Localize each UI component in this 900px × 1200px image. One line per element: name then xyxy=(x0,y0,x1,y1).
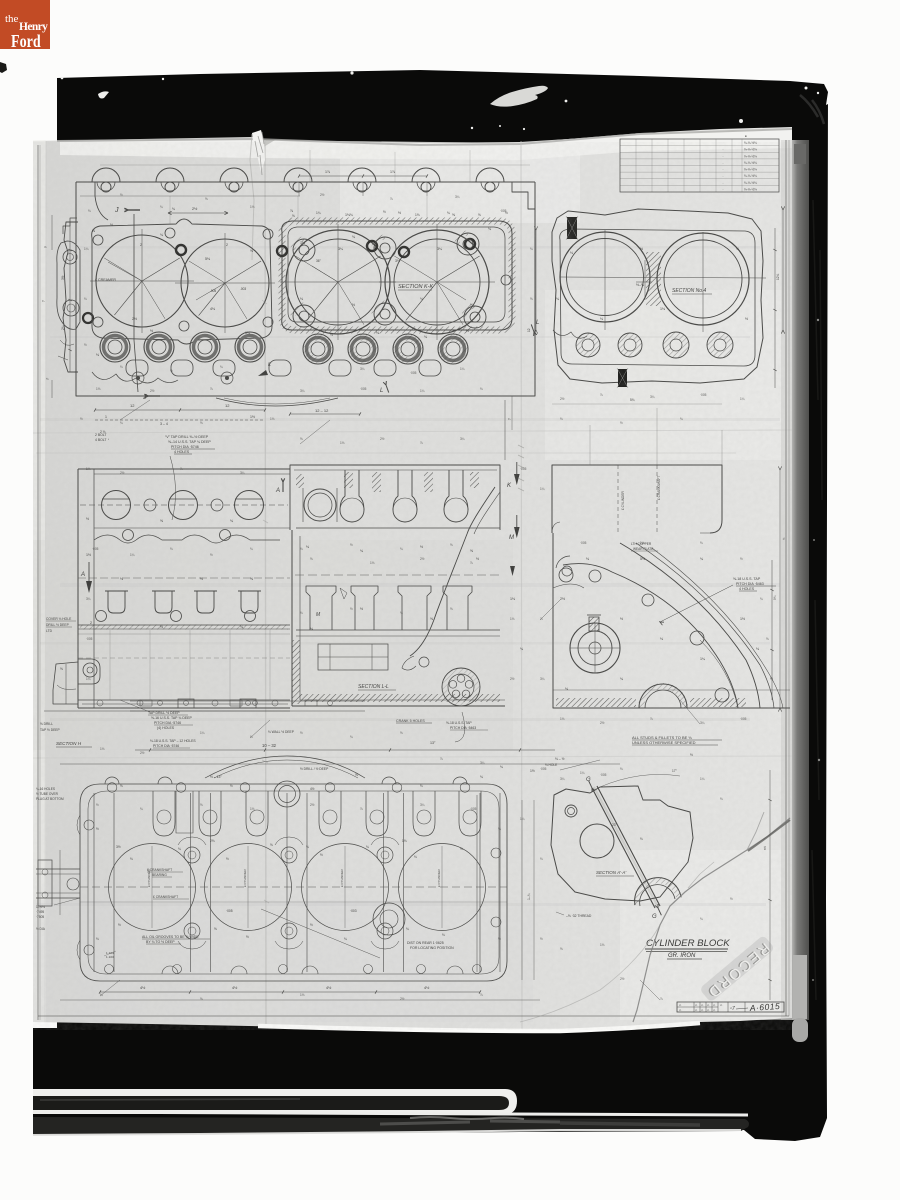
svg-text:½ DIA: ½ DIA xyxy=(36,927,46,931)
svg-text:¾: ¾ xyxy=(406,927,409,931)
svg-text:ALL OIL GROOVES TO BE ⅝ WIDE: ALL OIL GROOVES TO BE ⅝ WIDE xyxy=(142,935,199,939)
svg-text:4½: 4½ xyxy=(424,986,430,990)
svg-text:⅛: ⅛ xyxy=(170,547,173,551)
svg-text:4½: 4½ xyxy=(310,787,315,791)
svg-text:¾: ¾ xyxy=(500,765,503,769)
svg-text:1–⅛⅛: 1–⅛⅛ xyxy=(36,905,45,909)
svg-text:2½: 2½ xyxy=(140,751,145,755)
svg-text:SECTION K-K: SECTION K-K xyxy=(398,284,433,290)
svg-text:1⅛: 1⅛ xyxy=(86,467,91,471)
svg-text:£ CREAMER: £ CREAMER xyxy=(95,278,116,282)
svg-text:4⅛: 4⅛ xyxy=(210,307,215,311)
svg-text:⅛·: ⅛· xyxy=(701,1004,704,1007)
svg-text:1⅛: 1⅛ xyxy=(600,943,605,947)
svg-text:¾: ¾ xyxy=(350,735,353,739)
svg-text:⅝: ⅝ xyxy=(250,249,253,253)
svg-text:⅛·: ⅛· xyxy=(695,1004,698,1007)
svg-text:1½: 1½ xyxy=(250,415,255,419)
svg-text:··: ·· xyxy=(722,161,724,165)
svg-text:½: ½ xyxy=(540,937,543,941)
svg-text:½: ½ xyxy=(330,333,333,337)
svg-text:⅛-⅛-½⅛: ⅛-⅛-½⅛ xyxy=(744,154,757,158)
svg-text:⅛: ⅛ xyxy=(310,627,313,631)
svg-text:£ CYLINDER: £ CYLINDER xyxy=(621,491,625,510)
svg-text:.003: .003 xyxy=(240,287,246,291)
svg-text:1¼: 1¼ xyxy=(740,397,745,401)
svg-text:·005: ·005 xyxy=(520,467,527,471)
svg-text:½: ½ xyxy=(352,303,355,307)
svg-text:3¼: 3¼ xyxy=(455,195,460,199)
svg-text:⅛·: ⅛· xyxy=(679,1004,682,1007)
svg-text:WEAR PLATE: WEAR PLATE xyxy=(633,547,653,551)
svg-text:9¾: 9¾ xyxy=(773,595,777,600)
svg-text:¾: ¾ xyxy=(366,845,369,849)
svg-text:⅛ – ½: ⅛ – ½ xyxy=(555,757,565,761)
svg-text:½ DRILL / ½ DEEP: ½ DRILL / ½ DEEP xyxy=(300,767,329,771)
svg-text:A: A xyxy=(80,572,85,578)
svg-text:⅛-⅛-½⅛: ⅛-⅛-½⅛ xyxy=(744,148,757,152)
svg-text:⅛·: ⅛· xyxy=(707,1009,710,1012)
svg-text:L: L xyxy=(380,388,383,394)
svg-text:½: ½ xyxy=(226,857,229,861)
svg-text:⅛: ⅛ xyxy=(130,857,133,861)
svg-text:1¼: 1¼ xyxy=(700,777,705,781)
svg-text:⅛: ⅛ xyxy=(565,687,568,691)
svg-text:TAP DRILL ½ DEEP: TAP DRILL ½ DEEP xyxy=(148,711,180,715)
svg-text:2½: 2½ xyxy=(192,207,198,211)
svg-text:⅝: ⅝ xyxy=(478,213,481,217)
svg-text:2½: 2½ xyxy=(132,317,137,321)
svg-text:⅛: ⅛ xyxy=(300,611,303,615)
svg-text:⅛: ⅛ xyxy=(120,577,123,581)
svg-text:⅝: ⅝ xyxy=(530,297,533,301)
svg-text:¾: ¾ xyxy=(350,213,353,217)
svg-text:12: 12 xyxy=(130,403,135,408)
svg-text:·005: ·005 xyxy=(740,717,747,721)
svg-text:¾: ¾ xyxy=(480,775,483,779)
svg-text:3¼: 3¼ xyxy=(360,367,365,371)
svg-text:½: ½ xyxy=(350,607,353,611)
svg-text:½: ½ xyxy=(246,935,249,939)
svg-text:·005: ·005 xyxy=(540,767,547,771)
svg-text:¾: ¾ xyxy=(530,247,533,251)
svg-text:CRANK 5 HOLES: CRANK 5 HOLES xyxy=(396,719,425,723)
svg-text:2: 2 xyxy=(90,621,92,625)
svg-text:⅝: ⅝ xyxy=(452,213,455,217)
svg-text:⅛·: ⅛· xyxy=(713,1009,716,1012)
svg-text:½: ½ xyxy=(120,193,123,197)
svg-text:¾: ¾ xyxy=(140,807,143,811)
svg-text:⅛: ⅛ xyxy=(756,647,759,651)
svg-text:2½: 2½ xyxy=(310,803,315,807)
svg-text:1⅛: 1⅛ xyxy=(370,561,375,565)
svg-text:··: ·· xyxy=(722,181,724,185)
svg-text:¾: ¾ xyxy=(160,205,163,209)
svg-text:3½: 3½ xyxy=(61,275,65,280)
svg-text:⅝–14 U.S.S. TAP ¾ DEEP: ⅝–14 U.S.S. TAP ¾ DEEP xyxy=(168,440,211,444)
svg-text:¾: ¾ xyxy=(344,937,347,941)
svg-text:½: ½ xyxy=(118,923,121,927)
svg-text:··: ·· xyxy=(722,174,724,178)
svg-text:–⅝ ·32 THREAD: –⅝ ·32 THREAD xyxy=(566,914,592,918)
svg-text:1¼: 1¼ xyxy=(86,677,91,681)
svg-text:·005: ·005 xyxy=(360,387,367,391)
svg-text:⅛: ⅛ xyxy=(640,837,643,841)
svg-text:SECTION H: SECTION H xyxy=(56,741,82,746)
svg-text:⅛-⅛-½⅛: ⅛-⅛-½⅛ xyxy=(744,161,757,165)
svg-text:13°: 13° xyxy=(430,741,436,745)
svg-text:⅛-⅛-½⅛: ⅛-⅛-½⅛ xyxy=(744,181,757,185)
svg-text:·7495: ·7495 xyxy=(36,910,44,914)
svg-text:PITCH DIA ·5463: PITCH DIA ·5463 xyxy=(450,726,476,730)
svg-text:⅛: ⅛ xyxy=(620,767,623,771)
svg-text:⅝: ⅝ xyxy=(270,843,273,847)
svg-text:4½: 4½ xyxy=(232,986,238,990)
svg-text:⅛: ⅛ xyxy=(84,297,87,301)
svg-text:2¾: 2¾ xyxy=(61,325,65,330)
svg-text:36°: 36° xyxy=(316,259,322,263)
svg-text:1¼: 1¼ xyxy=(640,541,645,545)
svg-text:·005: ·005 xyxy=(226,909,233,913)
svg-text:¾: ¾ xyxy=(178,847,181,851)
svg-text:1⅛: 1⅛ xyxy=(96,387,101,391)
svg-text:⅛ WALL ½ DEEP: ⅛ WALL ½ DEEP xyxy=(268,730,295,734)
svg-text:⅛ HOLE: ⅛ HOLE xyxy=(545,763,557,767)
svg-text:CYLINDER BLOCK: CYLINDER BLOCK xyxy=(646,938,730,949)
svg-text:⅝: ⅝ xyxy=(250,577,253,581)
svg-text:1½: 1½ xyxy=(530,769,535,773)
svg-text:½: ½ xyxy=(350,543,353,547)
svg-text:¼-16 HOLES: ¼-16 HOLES xyxy=(36,787,55,791)
svg-text:1: 1 xyxy=(105,415,107,419)
svg-text:⅝: ⅝ xyxy=(310,557,313,561)
svg-text:⅛-⅛-½⅛: ⅛-⅛-½⅛ xyxy=(744,174,757,178)
svg-text:⅛: ⅛ xyxy=(720,797,723,801)
svg-text:⅝-18 U.S.S. TAP: ⅝-18 U.S.S. TAP xyxy=(733,577,761,581)
svg-text:10 – 32: 10 – 32 xyxy=(262,743,277,748)
svg-text:½: ½ xyxy=(320,853,323,857)
svg-text:£ CRANKSHAFT: £ CRANKSHAFT xyxy=(147,868,172,872)
svg-text:1⅛: 1⅛ xyxy=(415,213,420,217)
svg-text:3¼: 3¼ xyxy=(460,437,465,441)
svg-text:½: ½ xyxy=(476,557,479,561)
svg-text:½: ½ xyxy=(230,784,233,788)
svg-text:¾: ¾ xyxy=(498,827,501,831)
svg-text:2½: 2½ xyxy=(150,389,155,393)
svg-text:½–¾: ½–¾ xyxy=(636,283,645,287)
svg-text:LTD: LTD xyxy=(46,629,53,633)
svg-text:·7505: ·7505 xyxy=(36,915,44,919)
svg-text:⅞: ⅞ xyxy=(420,441,423,445)
svg-text:1⅛: 1⅛ xyxy=(340,441,345,445)
svg-text:J: J xyxy=(114,207,119,214)
svg-text:FOR LOCATING POSITION: FOR LOCATING POSITION xyxy=(410,946,454,950)
svg-text:1¼: 1¼ xyxy=(520,817,525,821)
svg-text:½: ½ xyxy=(210,553,213,557)
svg-text:1⅛: 1⅛ xyxy=(510,597,515,601)
svg-text:··: ·· xyxy=(722,187,724,191)
svg-text:⅝: ⅝ xyxy=(470,303,473,307)
svg-text:M: M xyxy=(509,535,514,541)
svg-text:⅝: ⅝ xyxy=(200,997,203,1001)
svg-text:⅞: ⅞ xyxy=(440,757,443,761)
svg-text:4½: 4½ xyxy=(140,986,146,990)
svg-text:⅞: ⅞ xyxy=(180,467,183,471)
svg-text:⅛: ⅛ xyxy=(300,547,303,551)
svg-text:1¼: 1¼ xyxy=(580,771,585,775)
svg-text:⅛·: ⅛· xyxy=(701,1009,704,1012)
svg-text:··: ·· xyxy=(722,168,724,172)
svg-text:⅛: ⅛ xyxy=(420,784,423,788)
svg-text:¾: ¾ xyxy=(760,597,763,601)
svg-text:⅝: ⅝ xyxy=(292,214,295,218)
svg-text:⅛·: ⅛· xyxy=(713,1004,716,1007)
svg-text:⅞: ⅞ xyxy=(290,209,293,213)
svg-text:⅝: ⅝ xyxy=(300,437,303,441)
svg-text:⅛-⅛-½⅛: ⅛-⅛-½⅛ xyxy=(744,141,757,145)
svg-text:⅝: ⅝ xyxy=(200,421,203,425)
svg-text:½: ½ xyxy=(96,803,99,807)
svg-text:¾: ¾ xyxy=(447,211,450,215)
svg-text:½: ½ xyxy=(200,577,203,581)
svg-text:5¾: 5¾ xyxy=(630,398,635,402)
svg-text:“V” TAP DRILL ⅝–½ DEEP: “V” TAP DRILL ⅝–½ DEEP xyxy=(165,435,209,439)
svg-text:½: ½ xyxy=(360,607,363,611)
svg-text:2½: 2½ xyxy=(510,677,515,681)
svg-text:2½: 2½ xyxy=(600,721,605,725)
svg-text:1⅛: 1⅛ xyxy=(300,993,305,997)
svg-text:2½: 2½ xyxy=(620,977,625,981)
svg-text:G: G xyxy=(652,914,657,920)
svg-text:2½: 2½ xyxy=(380,437,385,441)
svg-text:2 ⅛​: 2 ⅛​ xyxy=(100,430,106,434)
svg-text:PITCH DIA ·5746: PITCH DIA ·5746 xyxy=(154,721,181,725)
svg-text:1¼: 1¼ xyxy=(84,247,89,251)
svg-text:⅝: ⅝ xyxy=(200,803,203,807)
svg-text:⅝: ⅝ xyxy=(355,773,358,777)
svg-text:⅝: ⅝ xyxy=(736,247,739,251)
svg-text:PITCH DIA ·5463: PITCH DIA ·5463 xyxy=(736,582,764,586)
svg-text:·005: ·005 xyxy=(92,547,99,551)
svg-text:(4) HOLES: (4) HOLES xyxy=(157,726,175,730)
svg-text:¾: ¾ xyxy=(700,917,703,921)
svg-text:¾: ¾ xyxy=(400,547,403,551)
svg-text:½: ½ xyxy=(770,677,773,681)
svg-text:½ TUBE OVER: ½ TUBE OVER xyxy=(36,792,59,796)
svg-text:¾: ¾ xyxy=(172,207,175,211)
svg-text:1½: 1½ xyxy=(740,617,745,621)
svg-text:⅛: ⅛ xyxy=(306,545,309,549)
svg-text:2½: 2½ xyxy=(560,397,565,401)
svg-text:½ – 13°: ½ – 13° xyxy=(210,775,222,779)
svg-text:½: ½ xyxy=(398,211,401,215)
svg-text:COVER ⅛ HOLE: COVER ⅛ HOLE xyxy=(46,617,72,621)
svg-text:3¼: 3¼ xyxy=(540,677,545,681)
svg-text:4 HOLES: 4 HOLES xyxy=(174,450,190,454)
svg-text:··: ·· xyxy=(722,148,724,152)
svg-text:·005: ·005 xyxy=(500,209,507,213)
svg-text:⅝: ⅝ xyxy=(400,731,403,735)
svg-text:⅛: ⅛ xyxy=(480,387,483,391)
svg-text:¾: ¾ xyxy=(680,417,683,421)
svg-text:½: ½ xyxy=(80,417,83,421)
svg-text:⅝: ⅝ xyxy=(430,617,433,621)
svg-text:½: ½ xyxy=(730,897,733,901)
svg-text:··: ·· xyxy=(722,154,724,158)
svg-text:½: ½ xyxy=(86,517,89,521)
svg-text:2: 2 xyxy=(226,243,228,247)
svg-text:3¼: 3¼ xyxy=(86,597,91,601)
svg-text:·005: ·005 xyxy=(470,807,477,811)
svg-text:3¼: 3¼ xyxy=(240,471,245,475)
svg-text:⅛·: ⅛· xyxy=(679,1009,682,1012)
svg-text:17°: 17° xyxy=(672,769,678,773)
svg-text:1⅛: 1⅛ xyxy=(250,205,255,209)
svg-text:⅛·: ⅛· xyxy=(720,1004,723,1007)
svg-text:2⅛: 2⅛ xyxy=(210,839,215,843)
svg-text:⅝ DRILL: ⅝ DRILL xyxy=(40,722,53,726)
svg-text:·005: ·005 xyxy=(580,541,587,545)
svg-text:½: ½ xyxy=(740,557,743,561)
svg-text:12: 12 xyxy=(225,403,230,408)
svg-text:⅛: ⅛ xyxy=(120,365,123,369)
svg-text:⅞: ⅞ xyxy=(600,393,603,397)
svg-text:·003: ·003 xyxy=(350,909,357,913)
svg-text:PITCH DIA ·5746: PITCH DIA ·5746 xyxy=(153,744,179,748)
svg-text:2½: 2½ xyxy=(320,193,325,197)
svg-text:⅝: ⅝ xyxy=(60,667,63,671)
svg-text:½: ½ xyxy=(498,937,501,941)
svg-text:⅝: ⅝ xyxy=(766,637,769,641)
svg-text:12 – 12: 12 – 12 xyxy=(315,408,329,413)
svg-text:DRILL ½ DEEP: DRILL ½ DEEP xyxy=(46,623,70,627)
svg-text:7: 7 xyxy=(732,1006,735,1012)
svg-text:⅞: ⅞ xyxy=(480,993,483,997)
svg-text:½: ½ xyxy=(160,625,163,629)
svg-text:⅛: ⅛ xyxy=(560,417,563,421)
svg-text:⅞: ⅞ xyxy=(390,197,393,201)
svg-text:4½: 4½ xyxy=(326,986,332,990)
svg-text:½: ½ xyxy=(96,827,99,831)
svg-text:⅞: ⅞ xyxy=(650,717,653,721)
svg-text:⅛-⅛-½⅛: ⅛-⅛-½⅛ xyxy=(744,168,757,172)
svg-text:4 HOLES: 4 HOLES xyxy=(739,587,755,591)
svg-text:1¼: 1¼ xyxy=(460,367,465,371)
svg-text:½: ½ xyxy=(110,223,113,227)
svg-text:12⅛: 12⅛ xyxy=(776,273,780,280)
svg-text:½: ½ xyxy=(640,247,643,251)
svg-text:⅛·: ⅛· xyxy=(707,1004,710,1007)
svg-text:⅛: ⅛ xyxy=(414,855,417,859)
svg-text:¾: ¾ xyxy=(220,365,223,369)
svg-text:½: ½ xyxy=(383,210,386,214)
svg-text:BY ¾ TO ½ DEEP: BY ¾ TO ½ DEEP xyxy=(146,940,175,944)
svg-text:3¼: 3¼ xyxy=(700,721,705,725)
svg-text:⅝: ⅝ xyxy=(450,607,453,611)
svg-text:½: ½ xyxy=(84,343,87,347)
svg-text:1⅛: 1⅛ xyxy=(300,241,305,245)
svg-text:3¼: 3¼ xyxy=(420,803,425,807)
svg-text:⅝: ⅝ xyxy=(450,543,453,547)
svg-text:SECTION L-L: SECTION L-L xyxy=(358,684,389,690)
svg-text:1⅛: 1⅛ xyxy=(250,807,255,811)
svg-text:BEARING: BEARING xyxy=(152,873,167,877)
svg-text:⅛: ⅛ xyxy=(660,637,663,641)
svg-text:½: ½ xyxy=(620,617,623,621)
svg-text:1½: 1½ xyxy=(86,553,91,557)
svg-text:£ CRANKSHAFT: £ CRANKSHAFT xyxy=(657,476,661,500)
svg-text:¾: ¾ xyxy=(120,421,123,425)
svg-text:.005: .005 xyxy=(210,289,216,293)
svg-text:⅝: ⅝ xyxy=(92,229,95,233)
svg-text:£ CYLINDER: £ CYLINDER xyxy=(243,868,247,887)
svg-text:⅝: ⅝ xyxy=(160,519,163,523)
svg-text:⅝: ⅝ xyxy=(560,947,563,951)
svg-text:PLUG AT BOTTOM: PLUG AT BOTTOM xyxy=(36,797,64,801)
svg-text:1⅞: 1⅞ xyxy=(325,170,330,174)
svg-text:1⅛: 1⅛ xyxy=(510,617,515,621)
svg-text:½: ½ xyxy=(150,329,153,333)
svg-text:3¼: 3¼ xyxy=(650,395,655,399)
svg-text:¾: ¾ xyxy=(306,845,309,849)
svg-text:12: 12 xyxy=(527,328,531,332)
svg-text:¾: ¾ xyxy=(400,611,403,615)
svg-text:1⅛: 1⅛ xyxy=(100,747,105,751)
svg-text:⅝-16 U.S.S. TAP ¾ DEEP: ⅝-16 U.S.S. TAP ¾ DEEP xyxy=(151,716,193,720)
svg-text:½: ½ xyxy=(170,369,173,373)
svg-text:½: ½ xyxy=(310,923,313,927)
svg-text:SECTION A′-A′: SECTION A′-A′ xyxy=(596,870,626,875)
svg-text:3¼: 3¼ xyxy=(480,761,485,765)
svg-text:·005: ·005 xyxy=(86,637,93,641)
svg-text:1¼: 1¼ xyxy=(540,487,545,491)
svg-text:1¼: 1¼ xyxy=(420,389,425,393)
svg-text:5½: 5½ xyxy=(640,557,645,561)
svg-text:1⅛: 1⅛ xyxy=(560,717,565,721)
svg-text:5⅛: 5⅛ xyxy=(205,257,210,261)
svg-text:⅛: ⅛ xyxy=(442,933,445,937)
svg-text:£ CRANKSHAFT: £ CRANKSHAFT xyxy=(153,895,178,899)
svg-text:4 BOLT: 4 BOLT xyxy=(95,438,106,442)
svg-text:½: ½ xyxy=(460,847,463,851)
svg-text:G: G xyxy=(586,777,591,783)
svg-text:⅛: ⅛ xyxy=(586,557,589,561)
svg-text:A: A xyxy=(275,488,280,494)
svg-text:3 – 4: 3 – 4 xyxy=(160,422,168,426)
svg-text:⅛: ⅛ xyxy=(600,317,603,321)
svg-text:UNLESS OTHERWISE SPECIFIED: UNLESS OTHERWISE SPECIFIED xyxy=(632,740,696,745)
svg-text:·005: ·005 xyxy=(600,773,607,777)
svg-text:SECTION No.4: SECTION No.4 xyxy=(672,288,706,294)
svg-text:1⅛: 1⅛ xyxy=(402,839,407,843)
svg-text:2½: 2½ xyxy=(420,557,425,561)
svg-text:⅛: ⅛ xyxy=(96,353,99,357)
svg-text:⅛: ⅛ xyxy=(96,937,99,941)
svg-text:⅛: ⅛ xyxy=(88,209,91,213)
svg-text:⅛: ⅛ xyxy=(570,251,573,255)
svg-text:TAP ½ DEEP: TAP ½ DEEP xyxy=(40,728,60,732)
svg-text:⅝: ⅝ xyxy=(470,549,473,553)
svg-text:⅞: ⅞ xyxy=(210,387,213,391)
svg-text:2: 2 xyxy=(140,243,142,247)
svg-text:½: ½ xyxy=(620,421,623,425)
svg-text:⅝: ⅝ xyxy=(205,197,208,201)
svg-text:⅞: ⅞ xyxy=(470,561,473,565)
svg-text:1¼: 1¼ xyxy=(130,553,135,557)
svg-text:3½: 3½ xyxy=(395,259,400,263)
svg-text:·005: ·005 xyxy=(410,371,417,375)
svg-text:⅛·: ⅛· xyxy=(695,1009,698,1012)
